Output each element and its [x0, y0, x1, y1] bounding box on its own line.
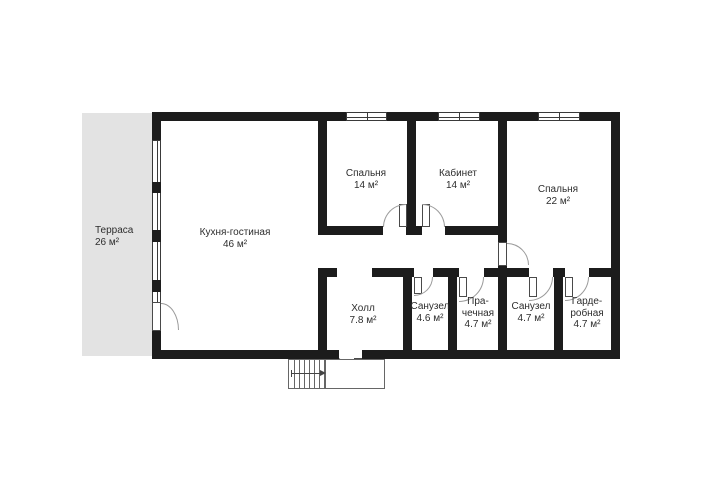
stair-tread	[299, 360, 300, 388]
room-label-wardrobe: Гарде- робная 4.7 м²	[570, 296, 603, 331]
room-name: Санузел	[411, 301, 450, 313]
bedroom1-door-opening	[383, 226, 406, 235]
hall-corridor-passage	[337, 268, 372, 277]
glazing-mullion	[152, 230, 161, 242]
room-area: 14 м²	[439, 180, 477, 192]
room-label-hall: Холл 7.8 м²	[350, 303, 377, 326]
bedroom2-window	[538, 112, 580, 121]
room-label-bathroom-1: Санузел 4.6 м²	[411, 301, 450, 324]
wall-kitchen-bedroom1	[318, 121, 327, 235]
bedroom2-door-arc	[507, 243, 529, 265]
terrace-door-arc	[161, 303, 179, 330]
room-label-terrace: Терраса 26 м²	[95, 225, 133, 248]
room-name: Гарде- робная	[570, 296, 603, 319]
study-window	[438, 112, 480, 121]
room-area: 4.7 м²	[512, 313, 551, 325]
stair-tread	[309, 360, 310, 388]
floor-plan-canvas: Терраса 26 м² Кухня-гостиная 46 м² Спаль…	[0, 0, 702, 502]
glazing-mullion	[152, 182, 161, 193]
room-area: 14 м²	[346, 180, 386, 192]
wall-hall-west	[318, 268, 327, 359]
room-area: 4.7 м²	[462, 319, 494, 331]
room-area: 22 м²	[538, 196, 578, 208]
stairs-arrow-head	[320, 370, 326, 376]
room-area: 26 м²	[95, 237, 133, 249]
bathroom1-door-opening	[414, 268, 433, 277]
room-name: Санузел	[512, 301, 551, 313]
room-label-bathroom-2: Санузел 4.7 м²	[512, 301, 551, 324]
stair-tread	[304, 360, 305, 388]
room-name: Холл	[350, 303, 377, 315]
terrace-door	[152, 302, 161, 331]
bathroom1-door-arc	[414, 277, 433, 296]
room-area: 7.8 м²	[350, 315, 377, 327]
bathroom2-door-arc	[529, 277, 553, 301]
wall-corridor-top	[318, 226, 507, 235]
stairs-direction-arrow	[291, 373, 320, 374]
wardrobe-door-opening	[565, 268, 589, 277]
stair-tread	[314, 360, 315, 388]
room-area: 4.6 м²	[411, 313, 450, 325]
room-area: 4.7 м²	[570, 319, 603, 331]
wall-bedroom1-study	[407, 121, 416, 235]
room-name: Кабинет	[439, 168, 477, 180]
bedroom2-door	[498, 242, 507, 266]
bedroom1-window	[346, 112, 387, 121]
wall-bottom	[152, 350, 620, 359]
wall-study-bedroom2	[498, 121, 507, 359]
wall-bathroom2-wardrobe	[554, 268, 563, 359]
room-label-bedroom-2: Спальня 22 м²	[538, 184, 578, 207]
terrace-glazing-window	[152, 140, 161, 303]
room-name: Спальня	[538, 184, 578, 196]
glazing-mullion	[152, 280, 161, 292]
room-label-study: Кабинет 14 м²	[439, 168, 477, 191]
study-door-arc	[422, 204, 445, 227]
room-label-laundry: Пра- чечная 4.7 м²	[462, 296, 494, 331]
room-label-bedroom-1: Спальня 14 м²	[346, 168, 386, 191]
bathroom2-door-opening	[529, 268, 553, 277]
entry-porch	[325, 359, 385, 389]
stair-tread	[294, 360, 295, 388]
study-door-opening	[422, 226, 445, 235]
room-name: Спальня	[346, 168, 386, 180]
room-name: Терраса	[95, 225, 133, 237]
bedroom1-door-arc	[383, 204, 406, 227]
room-label-kitchen-living: Кухня-гостиная 46 м²	[200, 227, 271, 250]
room-name: Кухня-гостиная	[200, 227, 271, 239]
room-area: 46 м²	[200, 239, 271, 251]
wall-right	[611, 112, 620, 359]
room-name: Пра- чечная	[462, 296, 494, 319]
laundry-door-opening	[459, 268, 484, 277]
